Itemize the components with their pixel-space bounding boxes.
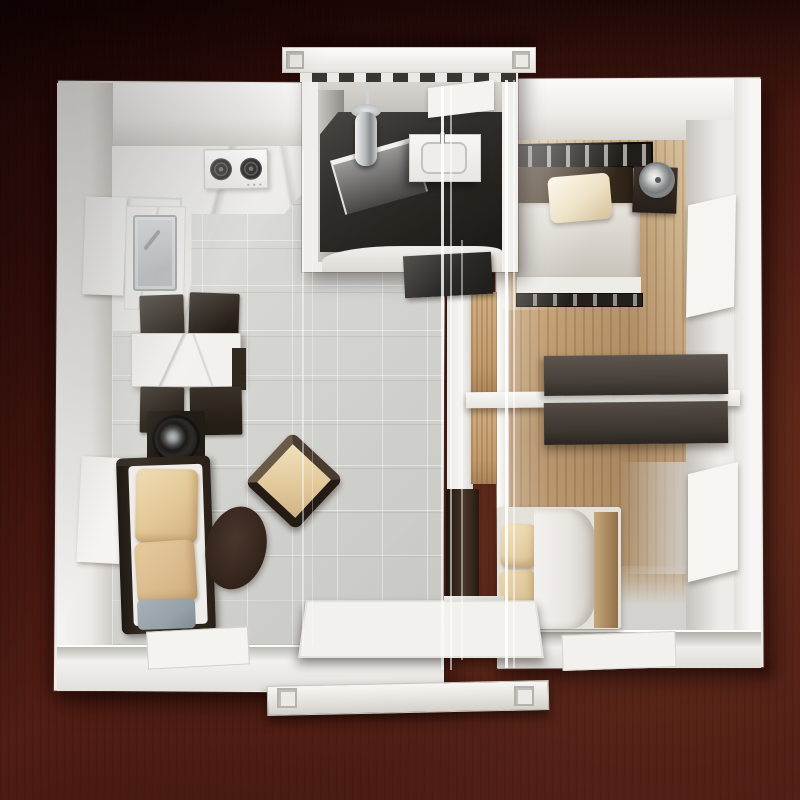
- stove-burner-icon: [240, 158, 262, 180]
- bathroom-door-mat: [403, 252, 493, 299]
- container-top-rail: [282, 47, 536, 73]
- vanity-basin: [421, 142, 467, 174]
- dining-chair-side: [232, 348, 246, 390]
- tv-panel: [446, 489, 479, 611]
- bed1-headboard-rail: [511, 142, 653, 170]
- sofa-pillow-beige: [135, 468, 198, 543]
- right-wing-right-wall: [734, 79, 761, 667]
- table-fan: [639, 162, 675, 198]
- bed2-pillow-beige: [500, 523, 538, 569]
- wood-door-panel: [471, 292, 499, 396]
- wardrobe-bedroom1: [544, 354, 728, 396]
- dining-chair: [139, 294, 184, 338]
- living-wall-window-1: [82, 196, 126, 295]
- sofa-pillow-beige: [134, 539, 198, 605]
- bed1-pillow: [547, 172, 613, 223]
- stove-burner-icon: [210, 158, 232, 180]
- corner-casting: [286, 51, 304, 69]
- sofa: [116, 455, 216, 634]
- corner-casting: [512, 51, 530, 69]
- left-wing-left-wall: [57, 83, 113, 691]
- architectural-model-photo: [0, 0, 800, 800]
- stove-knobs: [245, 183, 263, 187]
- dining-chair: [188, 292, 240, 338]
- shower-column: [355, 112, 377, 166]
- bed2-wood-footboard: [594, 512, 618, 628]
- dining-table: [131, 333, 241, 387]
- wardrobe-bedroom2: [544, 401, 728, 445]
- wood-door-panel: [471, 404, 499, 484]
- bed1-footboard: [516, 293, 643, 307]
- green-floor-glass-panel: [561, 631, 676, 671]
- sofa-cushion-gray: [137, 598, 196, 630]
- corner-casting: [277, 688, 297, 708]
- folded-floor-glass-panels: [146, 626, 250, 669]
- vanity-faucet: [440, 132, 445, 144]
- glazed-door-panel-grid: [298, 600, 544, 658]
- gas-stove: [204, 148, 269, 189]
- bedroom2-window: [688, 462, 738, 582]
- corner-casting: [514, 686, 534, 706]
- kitchen-sink-basin: [133, 215, 177, 291]
- bedroom1-window: [686, 194, 736, 318]
- container-base-rail: [267, 680, 550, 716]
- bed2-duvet-roll: [534, 509, 596, 629]
